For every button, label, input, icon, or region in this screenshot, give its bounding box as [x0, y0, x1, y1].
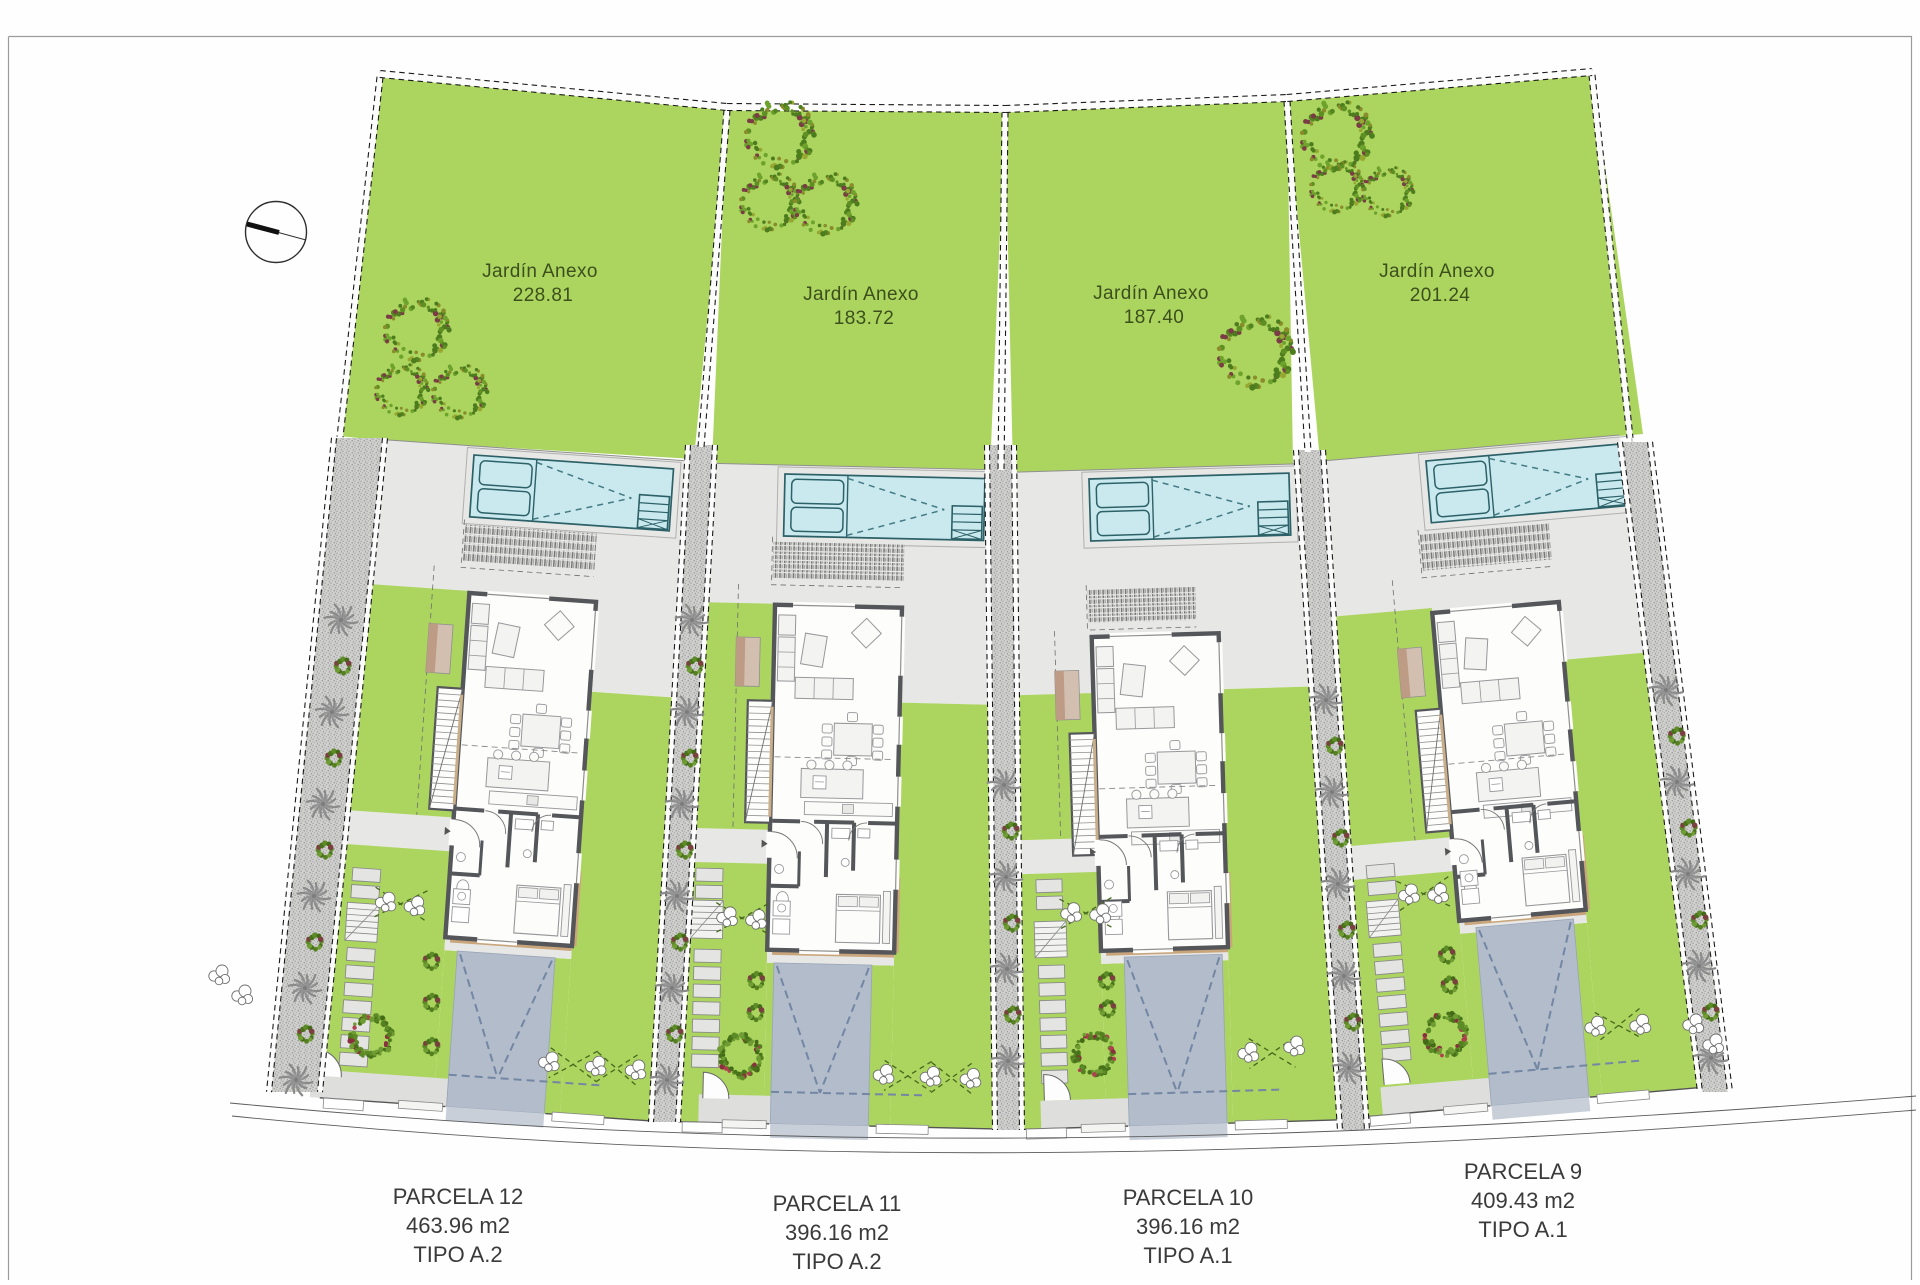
svg-text:187.40: 187.40: [1124, 307, 1185, 328]
svg-text:PARCELA 12: PARCELA 12: [393, 1184, 523, 1209]
svg-text:TIPO A.1: TIPO A.1: [1478, 1217, 1567, 1242]
svg-text:TIPO A.2: TIPO A.2: [413, 1242, 502, 1267]
svg-text:183.72: 183.72: [834, 308, 895, 329]
svg-text:Jardín Anexo: Jardín Anexo: [482, 261, 598, 282]
svg-text:201.24: 201.24: [1410, 285, 1471, 306]
svg-text:Jardín Anexo: Jardín Anexo: [1379, 261, 1495, 282]
svg-text:396.16 m2: 396.16 m2: [785, 1220, 889, 1245]
svg-text:PARCELA 10: PARCELA 10: [1123, 1185, 1253, 1210]
svg-text:TIPO A.1: TIPO A.1: [1143, 1243, 1232, 1268]
svg-text:PARCELA 9: PARCELA 9: [1464, 1159, 1582, 1184]
svg-text:463.96 m2: 463.96 m2: [406, 1213, 510, 1238]
svg-text:TIPO A.2: TIPO A.2: [792, 1249, 881, 1274]
svg-text:Jardín Anexo: Jardín Anexo: [803, 284, 919, 305]
svg-text:Jardín Anexo: Jardín Anexo: [1093, 283, 1209, 304]
svg-text:228.81: 228.81: [513, 285, 574, 306]
svg-text:396.16 m2: 396.16 m2: [1136, 1214, 1240, 1239]
svg-text:409.43 m2: 409.43 m2: [1471, 1188, 1575, 1213]
svg-text:PARCELA 11: PARCELA 11: [773, 1191, 902, 1216]
